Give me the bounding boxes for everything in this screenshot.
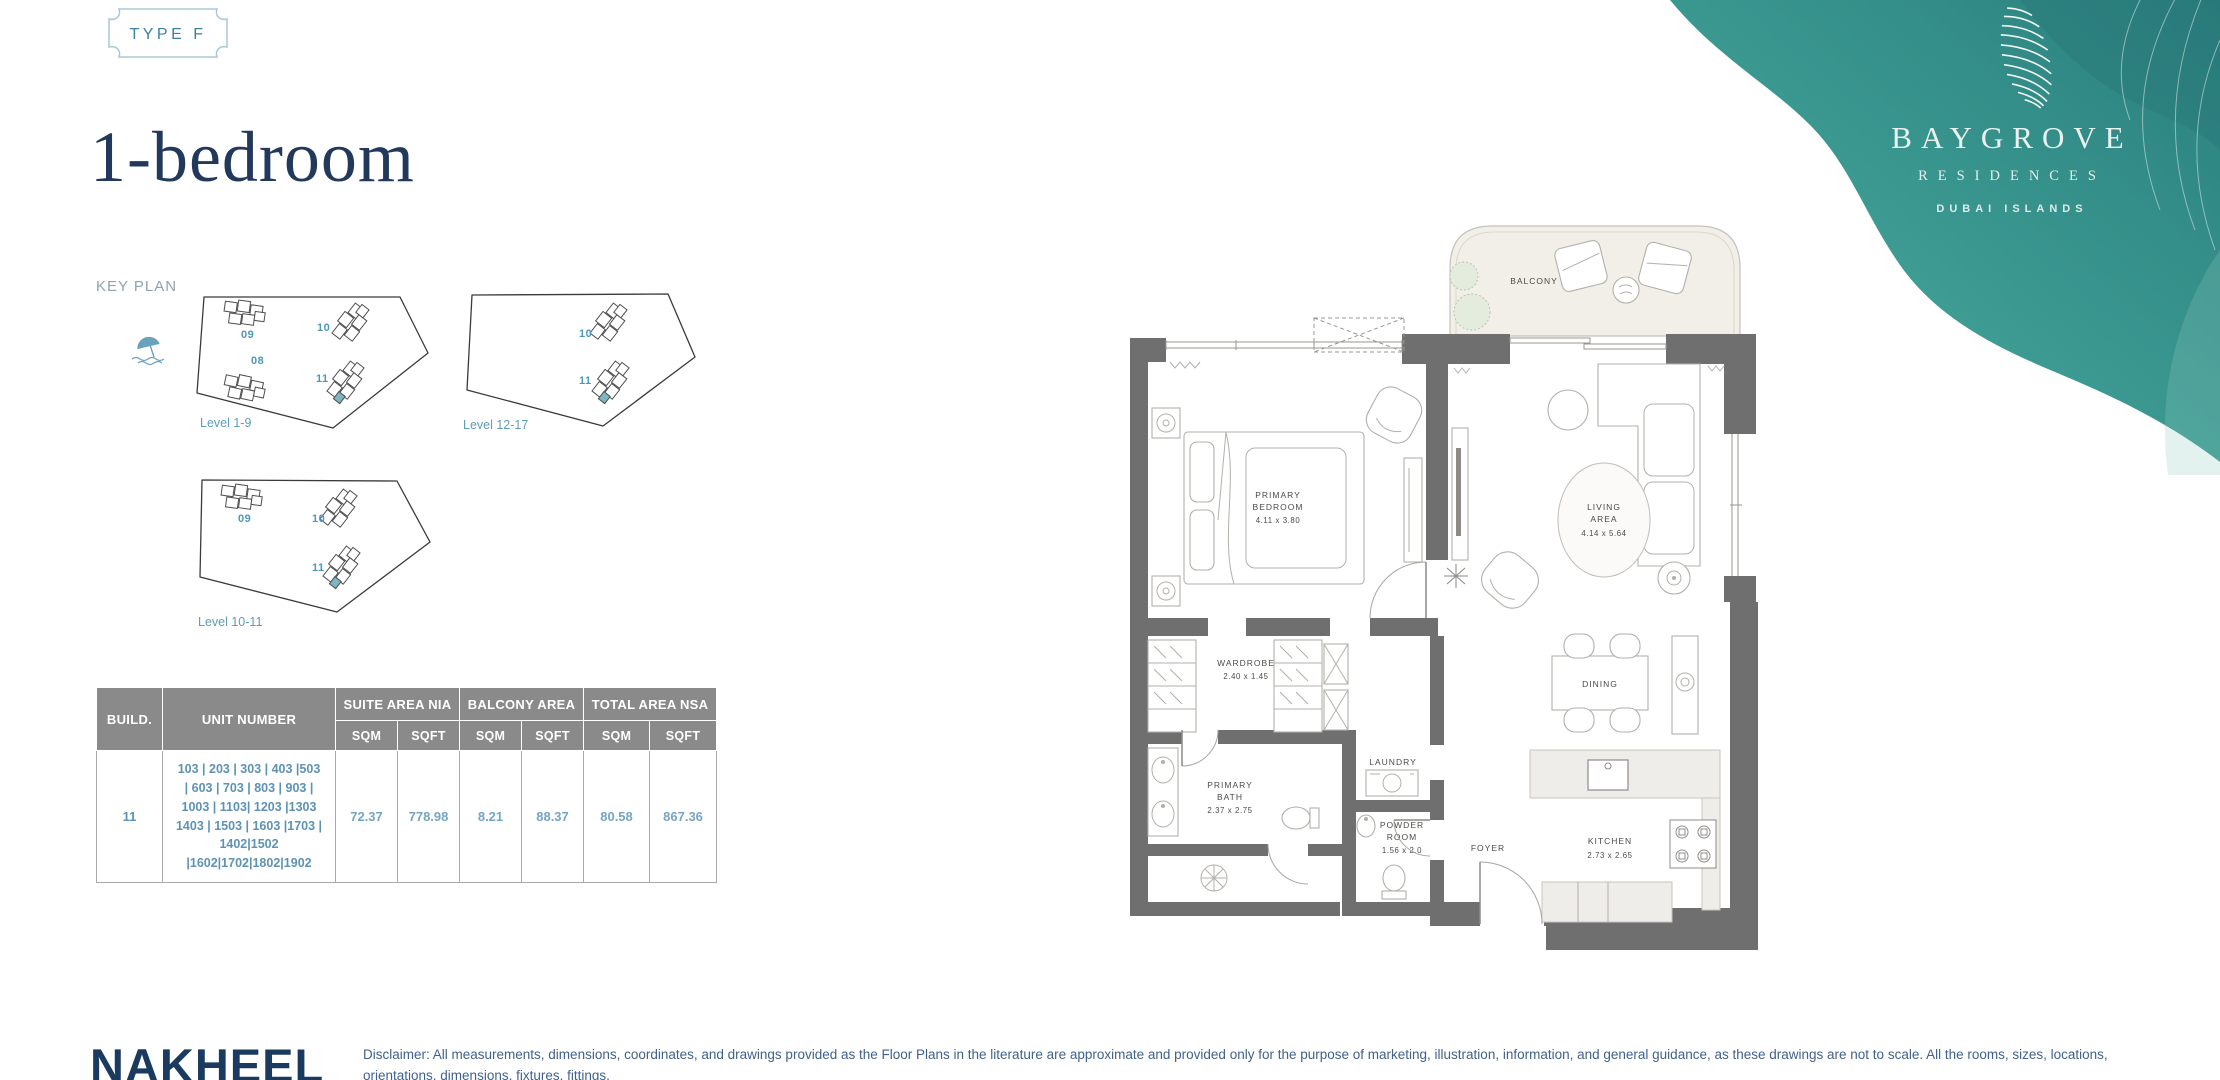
col-sqm: SQM: [584, 721, 650, 751]
balcony-table: [1613, 277, 1639, 303]
console-shelf: [1672, 636, 1698, 734]
bath-dims: 2.37 x 2.75: [1207, 806, 1252, 815]
linen-closet: [1324, 644, 1348, 730]
site-outline: [467, 294, 695, 426]
nightstand: [1152, 576, 1180, 606]
dining-chair: [1564, 634, 1594, 658]
col-sqm: SQM: [460, 721, 522, 751]
col-sqm: SQM: [336, 721, 398, 751]
sink: [1588, 760, 1628, 790]
dining-chair: [1610, 708, 1640, 732]
wardrobe-unit: [1274, 640, 1322, 732]
dining-area: DINING: [1552, 634, 1698, 734]
pillow: [1190, 510, 1214, 570]
nakheel-wordmark: NAKHEEL: [90, 1042, 350, 1080]
col-sqft: SQFT: [522, 721, 584, 751]
kitchen-island: [1542, 882, 1672, 922]
tv: [1456, 448, 1461, 536]
bedroom-dims: 4.11 x 3.80: [1256, 516, 1301, 525]
building-09-label: 09: [241, 329, 254, 341]
col-sqft: SQFT: [398, 721, 460, 751]
powder-label: POWDER: [1380, 820, 1424, 830]
key-plan-level-12-17: 10 11 Level 12-17: [455, 290, 715, 440]
page-title: 1-bedroom: [90, 116, 415, 199]
logo-place: DUBAI ISLANDS: [1936, 203, 2087, 215]
powder-room: POWDER ROOM 1.56 x 2.0: [1357, 815, 1430, 899]
ac-unit: [1314, 318, 1404, 352]
suite-sqm: 72.37: [336, 751, 398, 883]
armchair: [1361, 382, 1427, 449]
primary-bath: PRIMARY BATH 2.37 x 2.75: [1148, 730, 1319, 836]
shower-door-arc: [1268, 844, 1308, 884]
svg-text:BEDROOM: BEDROOM: [1253, 502, 1304, 512]
bath-door-arc: [1182, 730, 1218, 766]
wardrobe-dims: 2.40 x 1.45: [1223, 672, 1268, 681]
building-11-label: 11: [316, 373, 329, 385]
kitchen-area: KITCHEN 2.73 x 2.65: [1530, 750, 1720, 922]
dresser: [1404, 458, 1422, 562]
laundry-room: LAUNDRY: [1366, 757, 1418, 796]
dining-chair: [1564, 708, 1594, 732]
total-sqm: 80.58: [584, 751, 650, 883]
building-10-label: 10: [312, 513, 325, 525]
col-build: BUILD.: [97, 688, 163, 751]
col-suite-area: SUITE AREA NIA: [336, 688, 460, 721]
total-sqft: 867.36: [650, 751, 717, 883]
brand-corner: BAYGROVE RESIDENCES DUBAI ISLANDS: [1660, 0, 2220, 475]
wardrobe-unit: [1148, 640, 1196, 732]
level-label: Level 12-17: [463, 418, 528, 432]
armchair: [1475, 545, 1546, 615]
unit-area-table: BUILD. UNIT NUMBER SUITE AREA NIA BALCON…: [96, 687, 717, 883]
dining-label: DINING: [1582, 679, 1618, 689]
table-row: 11 103 | 203 | 303 | 403 |503 | 603 | 70…: [97, 751, 717, 883]
building-08-label: 08: [251, 355, 264, 367]
beach-umbrella-icon: [132, 338, 164, 365]
balcony-sqft: 88.37: [522, 751, 584, 883]
bath-label: PRIMARY: [1207, 780, 1253, 790]
key-plan-label: KEY PLAN: [96, 278, 177, 295]
kitchen-dims: 2.73 x 2.65: [1587, 851, 1632, 860]
building-10-label: 10: [579, 328, 592, 340]
plant: [1454, 294, 1490, 330]
key-plan-level-10-11: 09 10 11 Level 10-11: [190, 470, 450, 635]
living-label: LIVING: [1587, 502, 1621, 512]
bedroom-door-arc: [1370, 562, 1426, 618]
stove: [1670, 820, 1716, 868]
unit-numbers: 103 | 203 | 303 | 403 |503 | 603 | 703 |…: [163, 751, 336, 883]
svg-text:ROOM: ROOM: [1387, 832, 1417, 842]
primary-bedroom: PRIMARY BEDROOM 4.11 x 3.80: [1152, 362, 1427, 618]
col-sqft: SQFT: [650, 721, 717, 751]
pillow: [1190, 442, 1214, 502]
building-09-label: 09: [238, 513, 251, 525]
building-11-label: 11: [312, 562, 325, 574]
side-table: [1548, 390, 1588, 430]
balcony-sqm: 8.21: [460, 751, 522, 883]
badge-label: TYPE F: [129, 26, 206, 43]
insulation-mark: [1170, 362, 1200, 368]
level-label: Level 1-9: [200, 416, 251, 430]
nightstand: [1152, 408, 1180, 438]
col-total-area: TOTAL AREA NSA: [584, 688, 717, 721]
laundry-label: LAUNDRY: [1369, 757, 1416, 767]
level-label: Level 10-11: [198, 615, 262, 629]
build-value: 11: [97, 751, 163, 883]
developer-logo: NAKHEEL: [90, 1042, 350, 1080]
wardrobe-label: WARDROBE: [1217, 658, 1275, 668]
building-11-label: 11: [579, 375, 592, 387]
living-dims: 4.14 x 5.64: [1581, 529, 1626, 538]
entry-door-arc: [1480, 862, 1542, 924]
toilet: [1282, 807, 1319, 829]
bedroom-label: PRIMARY: [1255, 490, 1301, 500]
key-plan-level-1-9: 09 10 08 11 Level 1-9: [100, 295, 440, 440]
wardrobe-area: WARDROBE 2.40 x 1.45: [1148, 640, 1348, 732]
kitchen-label: KITCHEN: [1588, 836, 1632, 846]
dining-chair: [1610, 634, 1640, 658]
suite-sqft: 778.98: [398, 751, 460, 883]
brochure-page: TYPE F 1-bedroom KEY PLAN 09 10 08: [0, 0, 2220, 1080]
type-badge: TYPE F: [102, 4, 234, 62]
toilet: [1382, 865, 1406, 899]
foyer-label: FOYER: [1471, 843, 1505, 853]
col-balcony-area: BALCONY AREA: [460, 688, 584, 721]
svg-text:BATH: BATH: [1217, 792, 1243, 802]
disclaimer-text: Disclaimer: All measurements, dimensions…: [363, 1045, 2153, 1080]
col-unit-number: UNIT NUMBER: [163, 688, 336, 751]
svg-text:AREA: AREA: [1590, 514, 1617, 524]
logo-sub: RESIDENCES: [1918, 168, 2106, 184]
balcony-label: BALCONY: [1510, 276, 1558, 286]
foyer-area: FOYER: [1471, 843, 1542, 924]
plant: [1450, 262, 1478, 290]
building-10-label: 10: [317, 322, 330, 334]
plant-decor: [1444, 564, 1468, 588]
logo-name: BAYGROVE: [1891, 120, 2132, 155]
